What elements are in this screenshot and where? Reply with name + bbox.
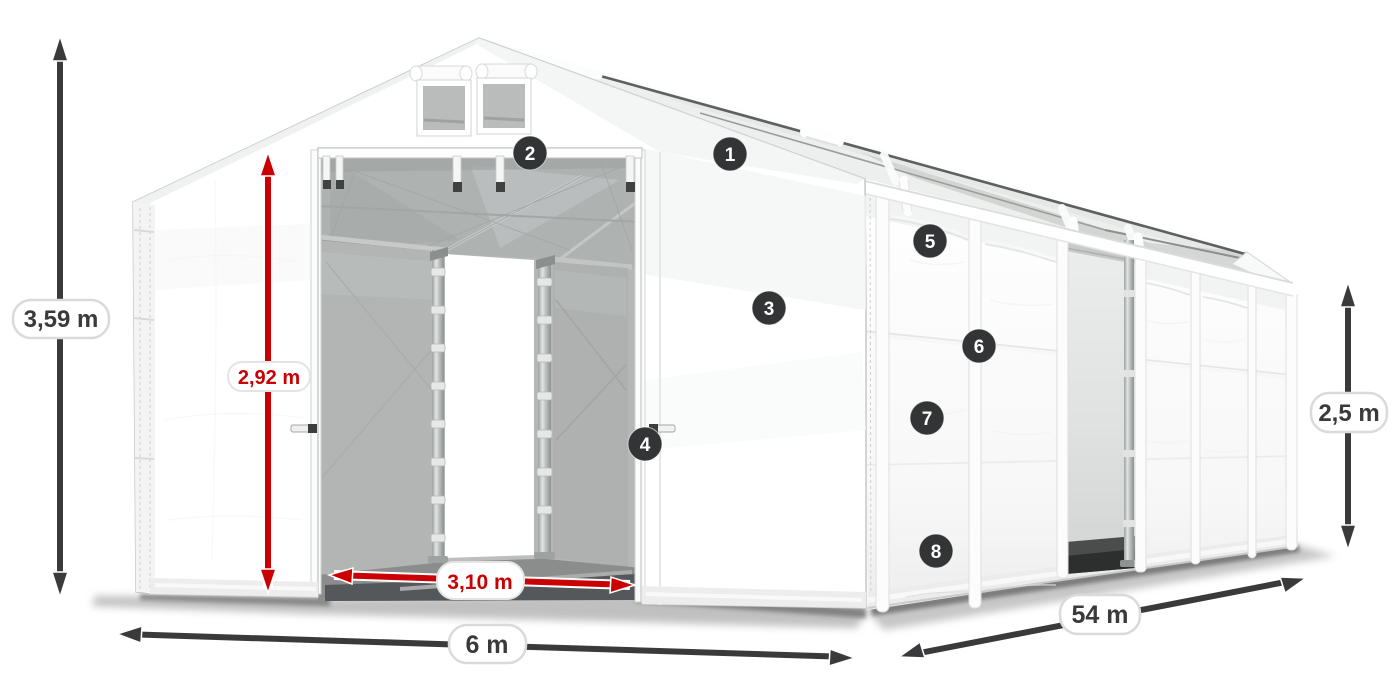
- svg-text:8: 8: [931, 542, 942, 563]
- svg-text:2: 2: [525, 144, 536, 165]
- svg-text:4: 4: [640, 435, 651, 456]
- svg-text:3,10 m: 3,10 m: [447, 571, 512, 594]
- svg-text:5: 5: [925, 232, 936, 253]
- svg-text:54 m: 54 m: [1072, 601, 1129, 629]
- svg-text:3: 3: [764, 299, 775, 320]
- svg-text:6: 6: [974, 337, 985, 358]
- svg-text:2,5 m: 2,5 m: [1318, 400, 1379, 427]
- svg-text:7: 7: [922, 409, 933, 430]
- svg-text:2,92 m: 2,92 m: [238, 367, 300, 389]
- svg-text:3,59 m: 3,59 m: [24, 306, 99, 333]
- svg-text:1: 1: [725, 145, 736, 166]
- svg-text:6 m: 6 m: [465, 631, 508, 659]
